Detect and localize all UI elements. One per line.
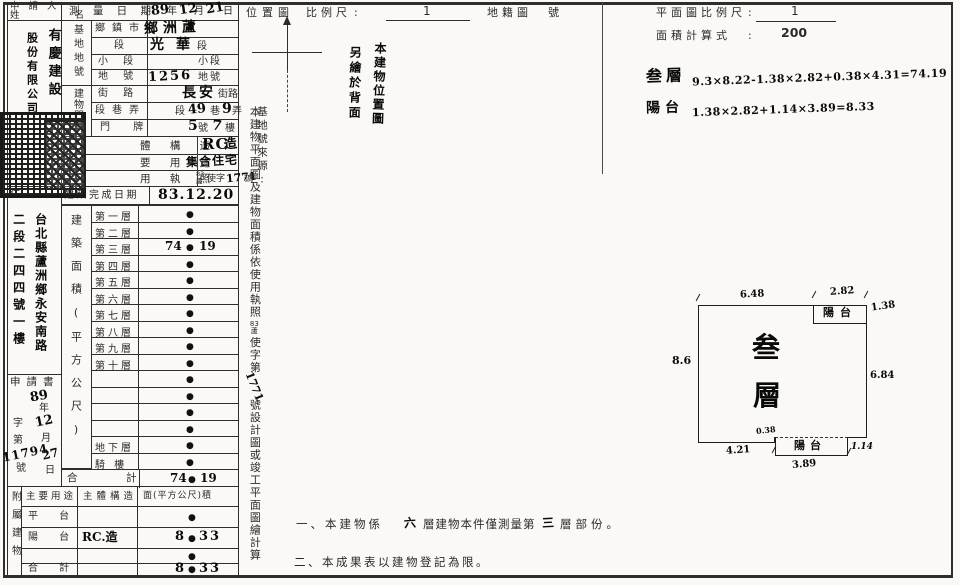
- subsection-label-cell: 小 段: [92, 55, 148, 70]
- survey-date-year-unit: 年: [167, 7, 177, 18]
- floor-label: [92, 388, 139, 404]
- bullet-dot: ●: [186, 243, 194, 253]
- bullet-dot: ●: [186, 227, 194, 237]
- annex-side-cell: 附屬建物: [8, 487, 22, 575]
- bullet-dot: ●: [186, 375, 194, 385]
- annex-use-label: 陽 台: [28, 533, 78, 544]
- dim-top-left: 6.48: [740, 289, 765, 301]
- bullet-dot: ●: [186, 342, 194, 352]
- dim-step: 0.38: [756, 425, 776, 435]
- floor-row: ●: [92, 388, 238, 405]
- address-cell: 住 址 台北縣蘆洲鄉永安南路 二段二四四號一樓: [8, 187, 62, 375]
- application-day-unit: 日: [45, 466, 55, 477]
- street-label-cell: 街 路: [92, 86, 148, 103]
- annex-col-structure: 主體構造: [83, 492, 137, 502]
- note1-mid: 層建物本件僅測量第: [423, 518, 536, 530]
- lane-label: 段巷弄: [95, 106, 146, 117]
- floor-row: 第三層74●19: [92, 239, 238, 256]
- bullet-dot: ●: [188, 475, 196, 485]
- floor-row: 第二層●: [92, 223, 238, 240]
- subsection-value-cell: 小段: [148, 55, 238, 70]
- application-month: 12: [34, 413, 55, 430]
- formula2-label: 陽台: [646, 101, 684, 116]
- annex-r1-structure: [78, 507, 138, 528]
- floor-label: [92, 404, 139, 420]
- annex-v2: 33: [199, 530, 221, 544]
- site-group-cell: 基地地號: [62, 21, 92, 86]
- floor-label: 第七層: [92, 305, 139, 321]
- application-day: 27: [41, 446, 60, 462]
- survey-date-day-unit: 日: [223, 7, 233, 18]
- border-left-outer: [3, 2, 5, 578]
- plan-scale-colon: :: [748, 7, 752, 19]
- plan-floor-char1: 叁: [752, 333, 780, 362]
- section-label: 段: [114, 41, 124, 52]
- door-label-cell: 門 牌: [92, 120, 148, 137]
- statement-sub: 蘆: [250, 328, 259, 335]
- calc-label: 面積計算式: [656, 30, 731, 42]
- lane-seg: 段: [175, 107, 185, 118]
- license-inner-divider: [197, 137, 198, 187]
- statement-part3: 號設計圖或竣工平面圖繪計算: [248, 399, 261, 562]
- balcony-bottom-box: 陽台: [775, 437, 848, 456]
- annex-r2-structure: RC.造: [78, 528, 138, 549]
- bullet-dot: ●: [186, 408, 194, 418]
- door-u1: 號: [198, 124, 208, 135]
- bullet-dot: ●: [188, 552, 196, 562]
- floor-label: 第八層: [92, 322, 139, 338]
- floorplan-main-outline: [698, 305, 867, 437]
- balcony-top-label: 陽台: [823, 307, 857, 319]
- address-left-col: 二段二四四號一樓: [12, 213, 25, 355]
- plan-scale-numerator: 1: [791, 5, 799, 18]
- annex-r3-use: [22, 549, 78, 564]
- area-total-label-cell: 合 計: [62, 470, 140, 488]
- applicant-label-cell: 申 請 人 姓 名: [8, 2, 62, 21]
- floor-v2: 19: [199, 240, 216, 253]
- township-value-cell: 鄉洲蘆: [148, 21, 238, 38]
- section-label-cell: 段: [92, 38, 148, 55]
- annex-r2-area: 8 ● 33: [138, 528, 238, 549]
- statement-supsub: 83蘆: [250, 321, 259, 335]
- dim-top-right: 2.82: [830, 286, 855, 298]
- floor-row: 第九層●: [92, 338, 238, 355]
- floor-row: 第七層●: [92, 305, 238, 322]
- floor-label: 第四層: [92, 256, 139, 272]
- floor-row: 第八層●: [92, 322, 238, 339]
- township-value: 鄉洲蘆: [144, 20, 201, 37]
- annex-col-use: 主要用途: [26, 492, 76, 502]
- annex-v1: 8: [175, 562, 184, 576]
- annex-header-use: 主要用途: [22, 487, 78, 507]
- section-value: 光華: [150, 38, 202, 53]
- floor-row: 第一層●: [92, 206, 238, 223]
- door-u2: 樓: [225, 124, 235, 135]
- license-statement: 本建物平面圖及建物面積係依使用執照83蘆使字第1771號設計圖或竣工平面圖繪計算: [239, 106, 270, 574]
- annex-use-label: 合 計: [28, 564, 78, 575]
- north-arrow-icon: [250, 16, 326, 116]
- floor-row: 第十層●: [92, 355, 238, 372]
- floor-row: 第六層●: [92, 289, 238, 306]
- annex-structure-value: RC.造: [82, 531, 118, 544]
- dim-tick: [696, 294, 701, 302]
- bullet-dot: ●: [186, 293, 194, 303]
- area-total-v2: 19: [200, 472, 217, 485]
- door-v2: 7: [211, 118, 223, 134]
- lot-label-cell: 地 號: [92, 70, 148, 86]
- subsection-unit: 小段: [198, 57, 222, 68]
- floor-label: 第十層: [92, 355, 139, 371]
- floor-label: 騎 樓: [92, 454, 139, 471]
- lot-label: 地 號: [98, 72, 139, 83]
- plan-floor-char2: 層: [753, 381, 781, 410]
- floor-row: 第五層●: [92, 272, 238, 289]
- lot-unit: 地號: [198, 73, 222, 84]
- site-group-label: 基地地號: [71, 24, 82, 84]
- street-label: 街 路: [98, 89, 139, 100]
- annex-r4-use: 合 計: [22, 564, 78, 575]
- company-seal-overlap: [44, 120, 86, 190]
- floor-label: 第三層: [92, 239, 139, 255]
- license-row: 用 執 照 83 蘆 使字 1771 號: [62, 171, 238, 187]
- floor-label: 第五層: [92, 272, 139, 288]
- dim-balcony-b-right: 1.14: [851, 443, 873, 452]
- floor-row: ●: [92, 371, 238, 388]
- application-zi: 字: [13, 419, 23, 430]
- survey-date-value-cell: 89 年 12 月 21 日: [148, 2, 238, 21]
- area-total-row: 合 計 74 ● 19: [62, 469, 238, 487]
- annex-r1-use: 平 台: [22, 507, 78, 528]
- bullet-dot: ●: [186, 441, 194, 451]
- note1-post: 層部份。: [560, 518, 622, 530]
- note-2: 二、本成果表以建物登記為限。: [294, 556, 490, 568]
- statement-number: 1771: [243, 370, 267, 403]
- floor-row: 地下層●: [92, 437, 238, 454]
- lot-value-cell: 1256 地號: [148, 70, 238, 86]
- applicant-name-right: 有慶建設: [46, 28, 60, 118]
- area-total-label-2: 計: [126, 473, 137, 484]
- annex-v1: 8: [175, 530, 184, 544]
- annex-r3-structure: [78, 549, 138, 564]
- location-scale-value: 1: [423, 5, 431, 18]
- floor-label: 地下層: [92, 437, 139, 453]
- survey-date-label: 測 量 日 期: [69, 6, 156, 17]
- floor-v1: 74: [165, 240, 182, 253]
- annex-v2: 33: [199, 562, 221, 576]
- annex-r3-area: ●: [138, 549, 238, 564]
- subsection-label: 小 段: [98, 57, 139, 68]
- lane-label-cell: 段巷弄: [92, 103, 148, 120]
- lane-v1: 49: [187, 102, 206, 117]
- floor-label: [92, 421, 139, 437]
- bullet-dot: ●: [188, 513, 196, 523]
- location-scale-colon: :: [354, 7, 358, 19]
- dim-tick: [812, 291, 817, 299]
- completion-value: 83.12.20: [158, 188, 234, 203]
- formula1: 9.3×8.22-1.38×2.82+0.38×4.31=74.19: [692, 68, 947, 88]
- floor-label: 第二層: [92, 223, 139, 239]
- annex-use-label: 平 台: [28, 512, 78, 523]
- township-label: 鄉鎮市: [95, 24, 146, 35]
- bullet-dot: ●: [186, 359, 194, 369]
- balcony-top-box: 陽台: [813, 305, 867, 324]
- building-survey-form: 申 請 人 姓 名 測 量 日 期 89 年 12 月 21 日 有慶建設 股份…: [0, 0, 960, 585]
- statement-part2: 使字第: [248, 337, 261, 375]
- floorplan-bottom-strip: [698, 437, 775, 443]
- plan-scale-label: 平面圖比例尺: [656, 7, 746, 19]
- completion-value-cell: 83.12.20: [150, 187, 238, 205]
- dim-left: 8.6: [672, 355, 691, 367]
- door-label: 門 牌: [100, 123, 153, 134]
- bullet-dot: ●: [188, 534, 196, 544]
- door-v1: 5: [188, 119, 198, 134]
- annex-r4-structure: [78, 564, 138, 575]
- area-total-v1: 74: [170, 472, 187, 485]
- survey-date-month-unit: 月: [194, 7, 204, 18]
- floor-label: [92, 371, 139, 387]
- note1-floors: 六: [404, 517, 417, 530]
- balcony-bottom-label: 陽台: [794, 440, 826, 452]
- street-unit: 街路: [218, 90, 238, 101]
- annex-header-area: 面(平方公尺)積: [138, 487, 238, 507]
- lot-value: 1256: [148, 69, 193, 85]
- border-bottom: [3, 575, 953, 578]
- area-total-label-1: 合: [67, 473, 78, 484]
- floor-label: 第九層: [92, 338, 139, 354]
- statement-part1: 本建物平面圖及建物面積係依使用執照: [248, 106, 261, 319]
- section-value-cell: 光華 段: [148, 38, 238, 55]
- application-cell: 申請書 89 年 字 12 第 月 11794 號 27 日: [8, 375, 62, 487]
- bullet-dot: ●: [188, 565, 196, 575]
- annex-side-label: 附屬建物: [9, 491, 20, 575]
- plan-scale-denominator: 200: [781, 26, 807, 39]
- bullet-dot: ●: [186, 392, 194, 402]
- note1-num: 三: [542, 517, 555, 530]
- application-number-unit: 號: [16, 464, 26, 475]
- location-scale-underline: [386, 20, 470, 21]
- formula1-label: 叁層: [646, 67, 687, 85]
- use-value: 集合住宅: [186, 154, 239, 169]
- floor-row: 騎 樓●: [92, 454, 238, 471]
- bullet-dot: ●: [186, 309, 194, 319]
- floor-row: 第四層●: [92, 256, 238, 273]
- structure-value-cjk: 造: [223, 137, 237, 152]
- plan-scale-fraction-line: [756, 21, 836, 22]
- bullet-dot: ●: [186, 326, 194, 336]
- license-pre: 使字: [207, 175, 225, 184]
- lane-v2: 9: [222, 102, 232, 117]
- township-label-cell: 鄉鎮市: [92, 21, 148, 38]
- bullet-dot: ●: [186, 276, 194, 286]
- dim-balcony-b-width: 3.89: [792, 459, 817, 472]
- annex-header-structure: 主體構造: [78, 487, 138, 507]
- bullet-dot: ●: [186, 458, 194, 468]
- handnote-location-left: 另繪於背面: [347, 46, 361, 134]
- application-label: 申請書: [10, 377, 60, 388]
- handnote-location-right: 本建物位置圖: [370, 42, 386, 136]
- floor-label: 第一層: [92, 206, 139, 222]
- divider-right-top: [602, 2, 603, 174]
- area-group-cell: 建築面積(平方公尺): [62, 205, 92, 469]
- note1-pre: 一、本建物係: [296, 518, 383, 530]
- annex-r4-area: 8 ● 33: [138, 564, 238, 575]
- floor-label: 第六層: [92, 289, 139, 305]
- annex-r1-area: ●: [138, 507, 238, 528]
- dim-right: 6.84: [870, 371, 894, 382]
- area-group-label: 建築面積(平方公尺): [70, 214, 82, 466]
- bullet-dot: ●: [186, 260, 194, 270]
- use-row: 要 用 途 集合住宅: [62, 155, 238, 171]
- dim-bottom-left: 4.21: [726, 445, 751, 457]
- annex-col-area: 面(平方公尺)積: [143, 492, 212, 501]
- cadastral-label: 地籍圖: [487, 7, 532, 19]
- structure-row: 體 構 造 RC 造: [62, 137, 238, 155]
- calc-colon: :: [748, 30, 752, 42]
- annex-r2-use: 陽 台: [22, 528, 78, 549]
- dim-tick: [864, 291, 869, 299]
- formula2: 1.38×2.82+1.14×3.89=8.33: [692, 101, 875, 119]
- floor-rows: 第一層● 第二層● 第三層74●19 第四層● 第五層● 第六層● 第七層● 第…: [92, 205, 238, 469]
- border-right: [951, 2, 953, 578]
- dim-balcony-right: 1.38: [870, 300, 896, 314]
- bullet-dot: ●: [186, 425, 194, 435]
- bullet-dot: ●: [186, 210, 194, 220]
- application-di: 第: [13, 436, 23, 447]
- lane-alley: 巷: [210, 107, 220, 118]
- survey-date-label-cell: 測 量 日 期: [62, 2, 148, 21]
- section-unit: 段: [197, 42, 207, 53]
- floorplan-bottom-right-edge: [848, 437, 867, 439]
- address-right-col: 台北縣蘆洲鄉永安南路: [34, 213, 47, 365]
- floor-row: ●: [92, 421, 238, 438]
- street-value: 長安: [182, 86, 216, 101]
- cadastral-number-unit: 號: [548, 7, 559, 19]
- floor-row: ●: [92, 404, 238, 421]
